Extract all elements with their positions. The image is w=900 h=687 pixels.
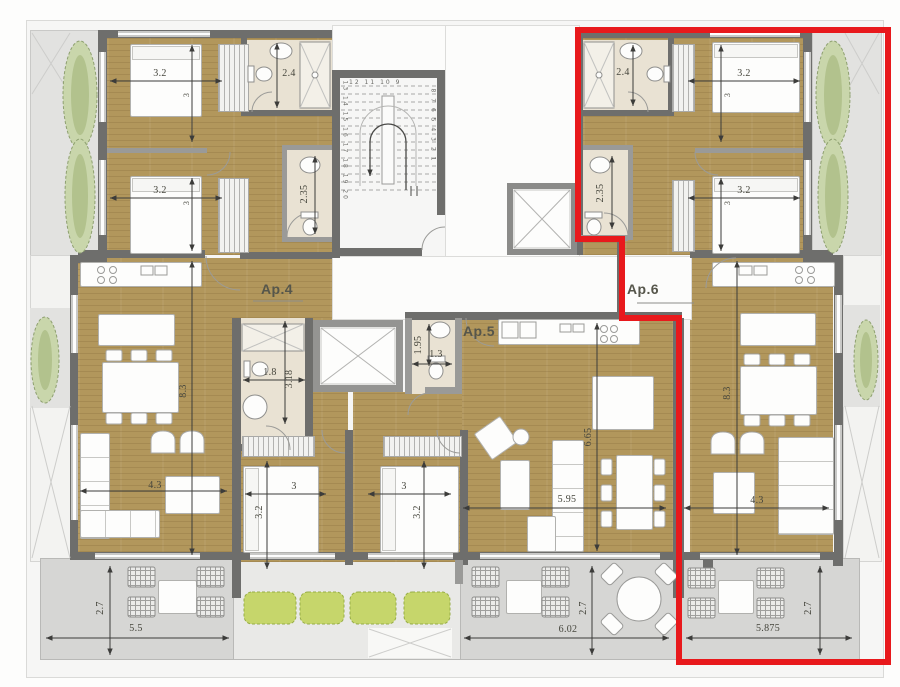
dim-terrace-mid-h: 2.7 (577, 586, 591, 630)
wall-stair-top (332, 70, 445, 78)
wall-stair-bottom (332, 248, 422, 256)
kitchen-island-ap6 (740, 313, 816, 346)
dim-ap4-bath-h: 3.18 (283, 357, 297, 401)
dim-tl-bed1-depth: 3 (180, 73, 194, 117)
wall (673, 318, 684, 558)
window (71, 295, 78, 353)
wall-stair-right (437, 70, 445, 215)
wall (405, 318, 412, 394)
dim-tr-bed2-depth: 3 (721, 181, 735, 225)
chaise-ap5 (500, 460, 530, 510)
side-strip-left (30, 255, 74, 562)
window (700, 553, 820, 559)
wall (107, 148, 207, 153)
dim-tl-bath: 2.4 (267, 67, 311, 81)
terrace-table-right (718, 580, 754, 614)
elevator-shaft (507, 183, 577, 255)
walkway-panel (368, 628, 452, 658)
dining-table-ap6 (740, 366, 817, 415)
window (95, 553, 200, 559)
dim-cbed1-h: 3.2 (253, 490, 267, 534)
side-strip-right (843, 255, 882, 562)
dim-ap5-bath-w: 1.3 (414, 348, 458, 362)
wall-stub (232, 552, 241, 598)
dim-tl-bed2: 3.2 (138, 184, 182, 198)
elevator-shaft-2 (313, 320, 403, 392)
wall (583, 145, 628, 150)
dim-terrace-right-w: 5.875 (746, 622, 790, 636)
void-above-stairs (332, 25, 447, 74)
wall (282, 145, 287, 242)
wall (232, 318, 241, 562)
wardrobe (672, 180, 695, 252)
terrace-table-left (158, 580, 197, 614)
window (804, 52, 811, 122)
terrace-ap4 (40, 558, 235, 660)
wall (287, 145, 332, 150)
balcony-mid-right (843, 305, 880, 407)
window (835, 425, 842, 520)
wardrobe (242, 436, 315, 457)
terrace-ap5 (460, 558, 677, 660)
kitchen-island-ap5 (592, 376, 654, 430)
window (250, 553, 335, 559)
dim-ap6-living-w: 4.3 (735, 494, 779, 508)
window (71, 425, 78, 520)
kitchen-counter-ap4 (80, 262, 202, 287)
wall-stub (833, 552, 843, 566)
wall (305, 318, 313, 450)
sofa-ap4-corner (80, 510, 160, 538)
balcony-top-left (30, 30, 100, 257)
wall (345, 430, 353, 565)
window (804, 160, 811, 235)
dining-table-ap5 (616, 455, 653, 530)
wall (583, 110, 668, 116)
dining-table-ap4 (102, 362, 179, 413)
dim-tl-bed2-depth: 3 (180, 181, 194, 225)
window (368, 553, 453, 559)
wardrobe (218, 178, 249, 253)
wall-stair-left (332, 70, 340, 258)
balcony-mid-left (30, 308, 72, 408)
dim-ap4-living-w: 4.3 (133, 479, 177, 493)
wardrobe (218, 44, 249, 112)
dim-terrace-left-h: 2.7 (94, 586, 108, 630)
floor-plan: Ap.4 Ap.5 Ap.6 3.2 3 3.2 3 2.4 2.35 3.2 … (0, 0, 900, 687)
label-ap5: Ap.5 (449, 323, 509, 339)
dim-ap5-living-w: 5.95 (545, 493, 589, 507)
wall (617, 238, 625, 318)
dim-ap6-living-h: 8.3 (721, 371, 735, 415)
dim-ap4-living-h: 8.3 (177, 369, 191, 413)
kitchen-counter-ap5 (498, 319, 640, 345)
balcony-top-right (812, 30, 882, 257)
label-ap4: Ap.4 (247, 281, 307, 297)
sofa-ap6 (778, 437, 834, 535)
wall (628, 145, 633, 240)
dim-terrace-right-h: 2.7 (802, 586, 816, 630)
sofa-ap5-corner (527, 516, 556, 552)
window (480, 553, 660, 559)
dim-tr-wc: 2.35 (594, 171, 608, 215)
window (99, 160, 106, 235)
wall-stub (455, 560, 463, 584)
stair-numbers-left: 13 14 15 16 17 18 19 20 (342, 81, 349, 193)
kitchen-island-ap4 (98, 314, 175, 346)
dim-tl-wc: 2.35 (298, 172, 312, 216)
bath-ap4 (240, 318, 310, 450)
wardrobe (383, 436, 462, 457)
wall (287, 237, 332, 242)
kitchen-counter-ap6 (712, 262, 835, 287)
dim-terrace-left-w: 5.5 (114, 622, 158, 636)
window (710, 31, 800, 37)
stair-numbers-top: 12 11 10 9 (349, 79, 421, 86)
wall-stub (673, 552, 684, 598)
window (835, 295, 842, 353)
stair-numbers-right: 8 7 6 5 4 3 2 1 (430, 89, 437, 201)
wardrobe (672, 44, 695, 112)
window (118, 31, 210, 37)
wall (425, 387, 462, 394)
dim-tr-bed1-depth: 3 (721, 73, 735, 117)
dim-cbed2-h: 3.2 (411, 490, 425, 534)
wall (695, 148, 803, 153)
dim-cbed1-w: 3 (272, 480, 316, 494)
label-ap6: Ap.6 (613, 281, 673, 297)
dim-ap5-living-h: 6.65 (582, 415, 596, 459)
dim-tr-bath: 2.4 (601, 66, 645, 80)
wall (247, 110, 332, 116)
wall (240, 252, 332, 259)
terrace-table-mid (506, 580, 542, 614)
dim-tl-bed1: 3.2 (138, 67, 182, 81)
terrace-ap6 (680, 558, 860, 660)
window (99, 52, 106, 122)
